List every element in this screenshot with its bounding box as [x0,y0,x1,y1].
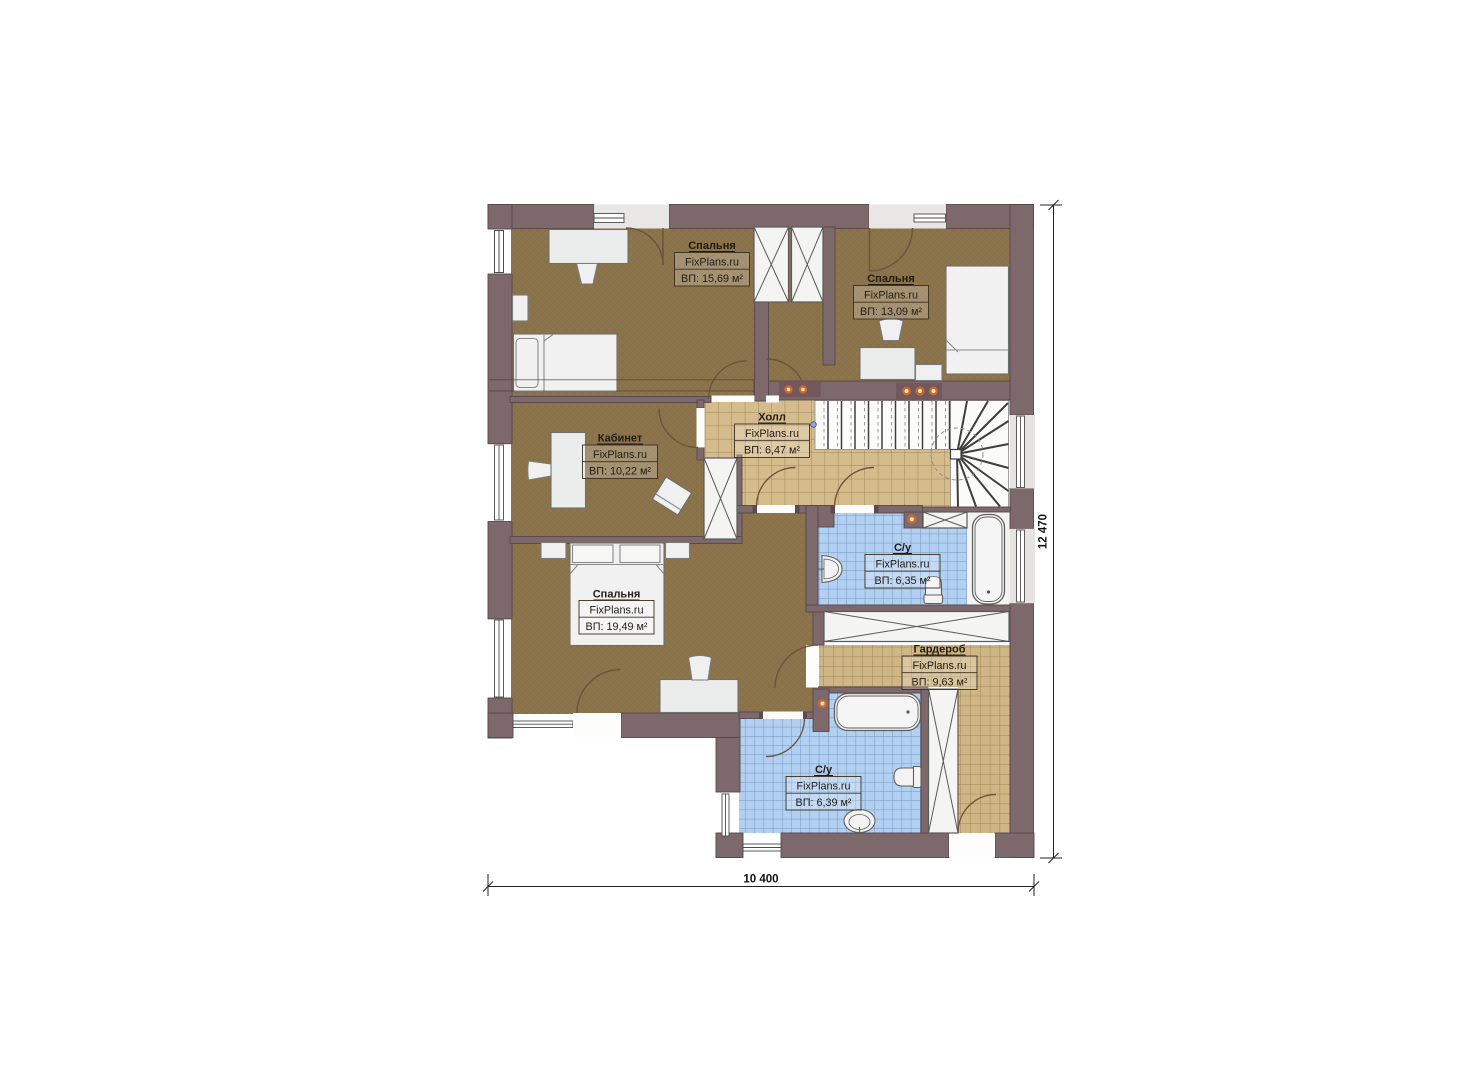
svg-text:FixPlans.ru: FixPlans.ru [589,605,643,617]
svg-text:ВП: 6,39 м²: ВП: 6,39 м² [796,797,852,809]
svg-text:10 400: 10 400 [743,874,778,886]
svg-text:Спальня: Спальня [867,273,915,285]
svg-text:FixPlans.ru: FixPlans.ru [864,290,918,302]
svg-text:FixPlans.ru: FixPlans.ru [745,428,799,440]
svg-text:С/у: С/у [894,542,912,554]
svg-text:ВП: 9,63 м²: ВП: 9,63 м² [912,677,968,689]
svg-text:С/у: С/у [815,764,833,776]
svg-text:FixPlans.ru: FixPlans.ru [796,781,850,793]
svg-text:ВП: 13,09 м²: ВП: 13,09 м² [860,306,922,318]
svg-text:ВП: 15,69 м²: ВП: 15,69 м² [681,273,743,285]
svg-text:Холл: Холл [758,412,786,424]
svg-text:Спальня: Спальня [688,240,736,252]
svg-text:12 470: 12 470 [1038,514,1050,549]
svg-text:ВП: 19,49 м²: ВП: 19,49 м² [586,621,648,633]
svg-text:ВП: 10,22 м²: ВП: 10,22 м² [589,466,651,478]
svg-text:Спальня: Спальня [593,589,641,601]
svg-text:FixPlans.ru: FixPlans.ru [593,449,647,461]
svg-text:FixPlans.ru: FixPlans.ru [912,660,966,672]
svg-text:FixPlans.ru: FixPlans.ru [875,559,929,571]
svg-text:Гардероб: Гардероб [914,644,966,656]
svg-text:ВП: 6,35 м²: ВП: 6,35 м² [875,575,931,587]
svg-text:FixPlans.ru: FixPlans.ru [685,257,739,269]
svg-text:ВП: 6,47 м²: ВП: 6,47 м² [744,445,800,457]
svg-text:Кабинет: Кабинет [598,433,643,445]
